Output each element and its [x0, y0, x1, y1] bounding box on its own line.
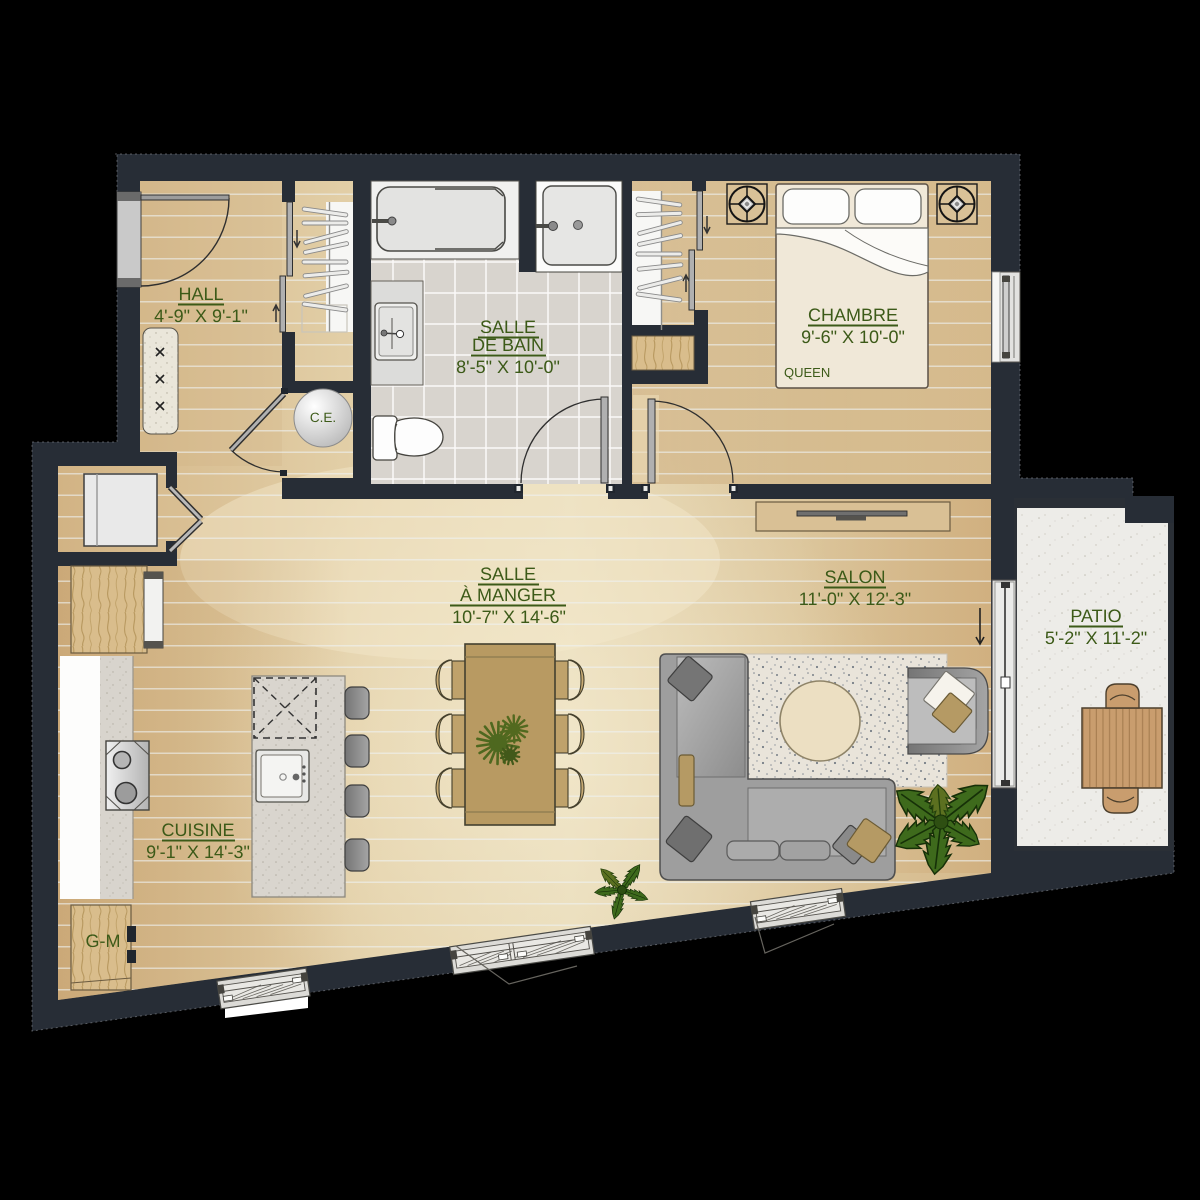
svg-text:10'-7" X 14'-6": 10'-7" X 14'-6": [452, 607, 566, 627]
svg-text:HALL: HALL: [178, 284, 223, 304]
svg-text:SALLE: SALLE: [480, 317, 536, 337]
svg-text:4'-9" X 9'-1": 4'-9" X 9'-1": [154, 306, 248, 326]
svg-text:G-M: G-M: [86, 931, 121, 951]
svg-text:SALON: SALON: [824, 567, 885, 587]
svg-text:DE BAIN: DE BAIN: [472, 335, 544, 355]
svg-text:PATIO: PATIO: [1070, 606, 1121, 626]
svg-text:À MANGER: À MANGER: [460, 585, 556, 605]
svg-text:8'-5" X 10'-0": 8'-5" X 10'-0": [456, 357, 560, 377]
svg-text:9'-1" X 14'-3": 9'-1" X 14'-3": [146, 842, 250, 862]
svg-text:QUEEN: QUEEN: [784, 365, 830, 380]
svg-text:CUISINE: CUISINE: [161, 820, 234, 840]
svg-text:CHAMBRE: CHAMBRE: [808, 305, 898, 325]
svg-text:5'-2" X 11'-2": 5'-2" X 11'-2": [1045, 628, 1147, 648]
svg-text:9'-6" X 10'-0": 9'-6" X 10'-0": [801, 327, 905, 347]
svg-text:11'-0" X 12'-3": 11'-0" X 12'-3": [799, 589, 911, 609]
svg-text:C.E.: C.E.: [310, 410, 336, 425]
svg-text:SALLE: SALLE: [480, 564, 536, 584]
